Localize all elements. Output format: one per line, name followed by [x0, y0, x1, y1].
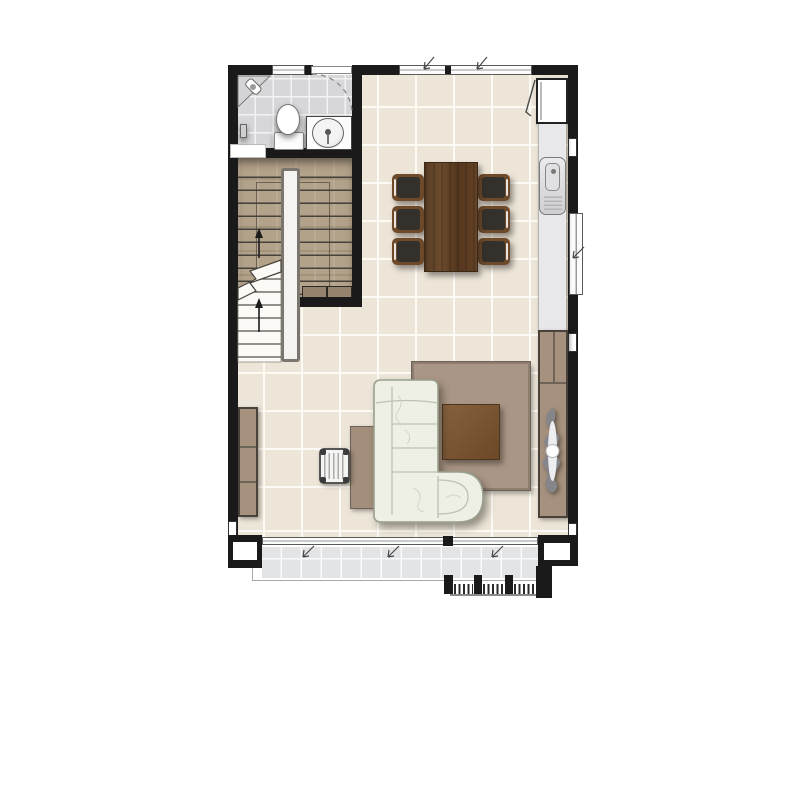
chair-post: [320, 449, 326, 455]
toilet: [276, 104, 300, 135]
wall-niche: [568, 138, 577, 157]
kitchen-counter: [538, 124, 566, 332]
chair-highlight: [394, 211, 396, 228]
low-cabinet: [238, 407, 258, 517]
refrigerator: [536, 78, 568, 124]
top-sliding-window: [399, 65, 532, 75]
kitchen-sink: [539, 157, 566, 215]
corner-opening-right: [544, 543, 570, 560]
fridge-door-line: [540, 82, 542, 120]
console-desk: [350, 426, 377, 509]
chair-seat: [482, 177, 505, 198]
sideboard: [538, 330, 568, 518]
washbasin: [312, 118, 344, 148]
terrace-post: [444, 575, 453, 594]
sink-drainboard: [544, 196, 562, 210]
wall-left: [228, 65, 238, 545]
dining-chair: [478, 238, 510, 265]
terrace-deck: [262, 547, 540, 578]
chair-highlight: [506, 179, 508, 196]
table-grain: [425, 163, 477, 271]
dining-chair: [478, 174, 510, 201]
dining-table: [424, 162, 478, 272]
sink-basin: [545, 163, 560, 191]
window-mullion: [445, 66, 451, 74]
wall-stair-bottom: [300, 297, 362, 307]
cabinet-seam: [240, 481, 256, 483]
cabinet-seam: [240, 446, 256, 448]
sideboard-seam: [553, 332, 555, 382]
stair-threshold: [230, 144, 266, 158]
chair-highlight: [394, 243, 396, 260]
terrace-sliding-door: [262, 537, 538, 545]
chair-post: [343, 449, 349, 455]
dining-chair: [392, 238, 424, 265]
chair-post: [320, 477, 326, 483]
chair-seat: [482, 241, 505, 262]
entry-steps-hatch: [514, 584, 536, 594]
basin-tap: [327, 135, 329, 144]
corner-opening-left: [233, 542, 257, 560]
sink-tap: [551, 169, 556, 174]
wall-bathroom-right: [352, 65, 362, 307]
entry-steps-hatch: [454, 584, 473, 594]
terrace-post: [474, 575, 482, 594]
floor-plan-canvas: [0, 0, 800, 800]
striped-chair: [319, 448, 350, 484]
coffee-table: [442, 404, 500, 460]
dining-chair: [392, 206, 424, 233]
sliding-door-mullion: [443, 536, 453, 546]
chair-ribbing: [324, 453, 345, 479]
chair-seat: [397, 241, 420, 262]
chair-highlight: [394, 179, 396, 196]
chair-seat: [397, 177, 420, 198]
dining-chair: [478, 206, 510, 233]
chair-post: [343, 477, 349, 483]
entry-steps-hatch: [483, 584, 504, 594]
terrace-post: [505, 575, 513, 594]
chair-highlight: [506, 243, 508, 260]
chair-highlight: [506, 211, 508, 228]
chair-seat: [397, 209, 420, 230]
stair-spine-wall: [281, 168, 300, 362]
cabinet-seam: [326, 287, 328, 297]
chair-seat: [482, 209, 505, 230]
wall-niche: [568, 333, 577, 352]
wall-tap: [240, 124, 247, 138]
wall-right: [568, 65, 578, 545]
dining-chair: [392, 174, 424, 201]
bathroom-window: [272, 65, 305, 75]
bathroom-door-leaf: [311, 66, 352, 74]
kitchen-casement-window: [569, 213, 583, 295]
sideboard-seam: [540, 382, 566, 384]
terrace-corner-post: [536, 566, 552, 598]
terrace-step-edge: [450, 594, 546, 596]
